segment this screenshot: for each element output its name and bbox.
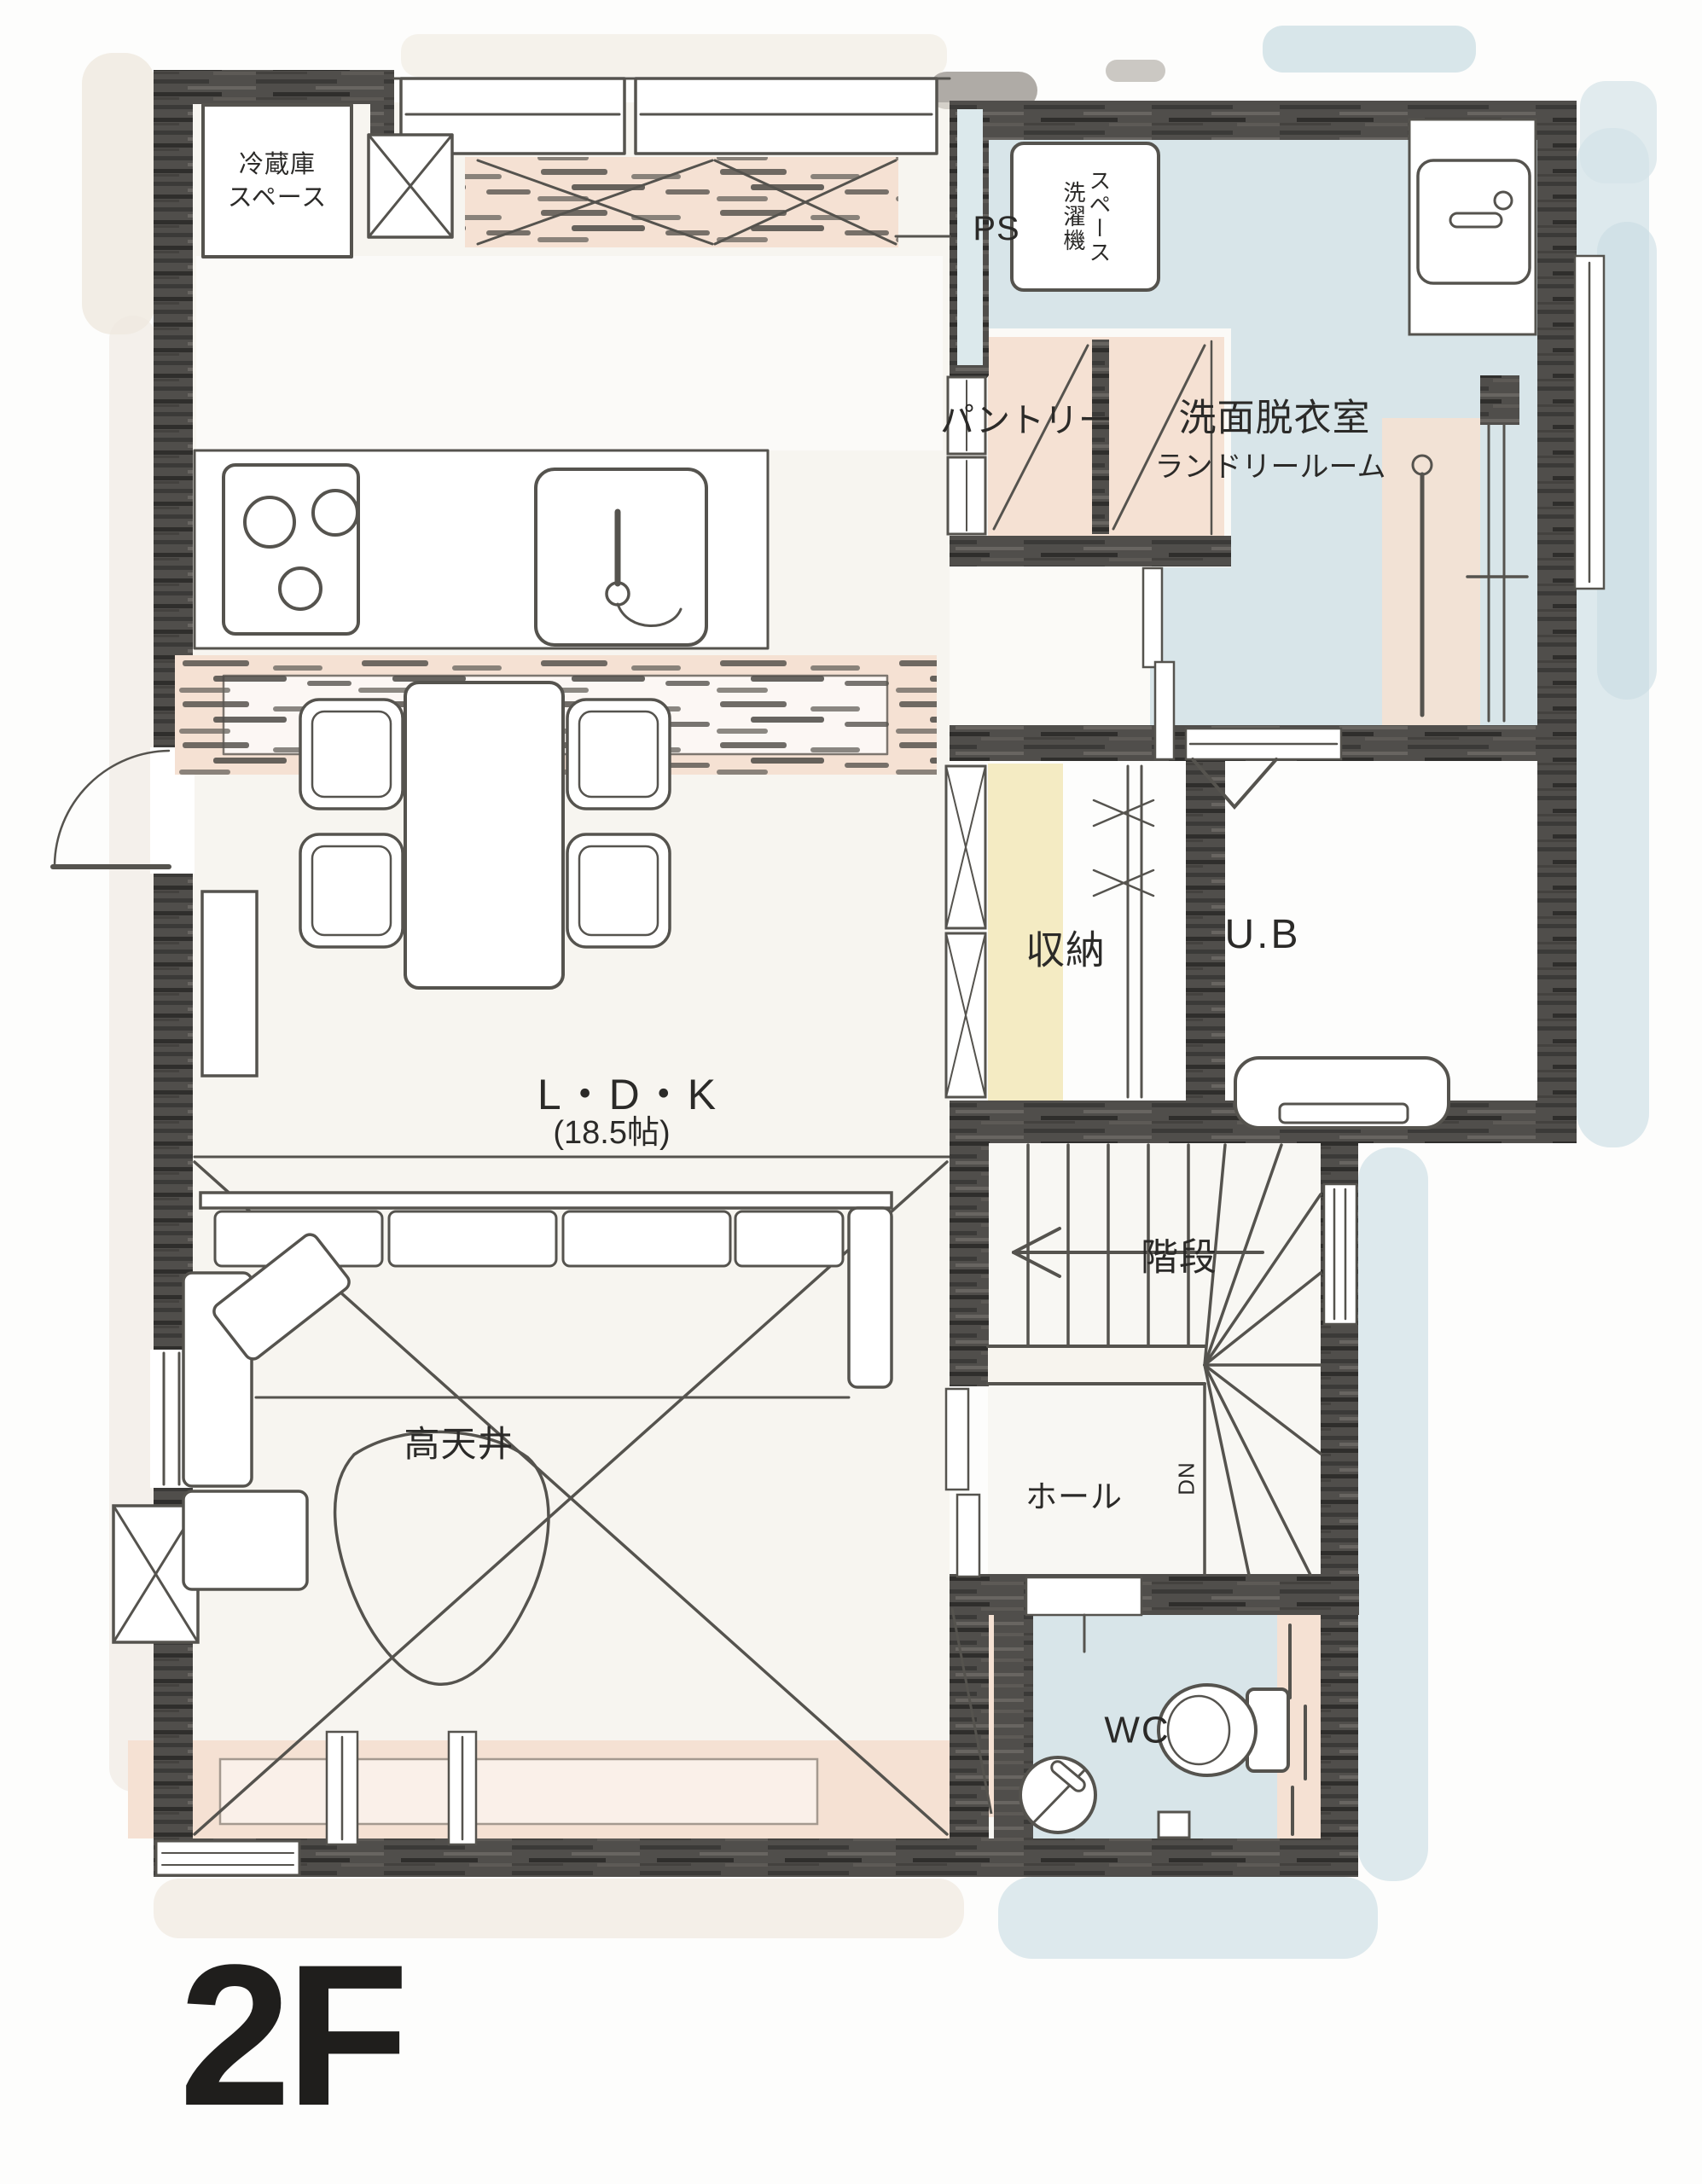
room-label-ldk: L・D・K (537, 1069, 718, 1120)
stairs-down-label: DN (1173, 1461, 1200, 1496)
bathtub-icon (1235, 1058, 1449, 1128)
floor-plan-2f: 冷蔵庫 スペース PS 洗濯機 スペース 洗面脱衣室 ランドリールーム パントリ… (0, 0, 1702, 2184)
closet-doors (946, 766, 985, 1097)
dining-chair (300, 700, 403, 809)
toilet-icon (1159, 1685, 1288, 1775)
room-label-hall: ホール (1025, 1478, 1123, 1516)
room-label-unit-bath: U.B (1224, 910, 1300, 960)
dining-chair (567, 834, 670, 947)
room-label-stairs: 階段 (1141, 1236, 1217, 1281)
dining-chair (567, 700, 670, 809)
room-label-fridge-space: 冷蔵庫 スペース (228, 148, 328, 215)
room-label-laundry: ランドリールーム (1155, 450, 1386, 485)
room-label-pantry: パントリー (940, 400, 1112, 441)
dining-set (300, 682, 670, 988)
room-label-washroom: 洗面脱衣室 (1179, 397, 1371, 442)
room-label-washer-space: 洗濯機 スペース (1060, 169, 1111, 264)
room-label-wc: WC (1104, 1709, 1170, 1754)
room-label-ldk-size: (18.5帖) (553, 1114, 670, 1153)
dining-chair (300, 834, 403, 947)
room-label-storage: 収納 (1025, 926, 1106, 973)
floor-label: 2F (179, 1935, 404, 2136)
sink-icon (536, 469, 706, 645)
dining-table (405, 682, 563, 988)
side-cabinet (202, 892, 257, 1076)
hand-basin-icon (1020, 1757, 1095, 1833)
room-label-ps: PS (973, 208, 1019, 249)
washbasin-icon (1409, 119, 1536, 334)
stove-icon (224, 465, 358, 634)
cupboard-x-icon (369, 135, 452, 237)
wc-stool (1159, 1812, 1189, 1838)
room-label-high-ceiling: 高天井 (404, 1423, 514, 1466)
floor-plan-drawing (0, 0, 1702, 2184)
